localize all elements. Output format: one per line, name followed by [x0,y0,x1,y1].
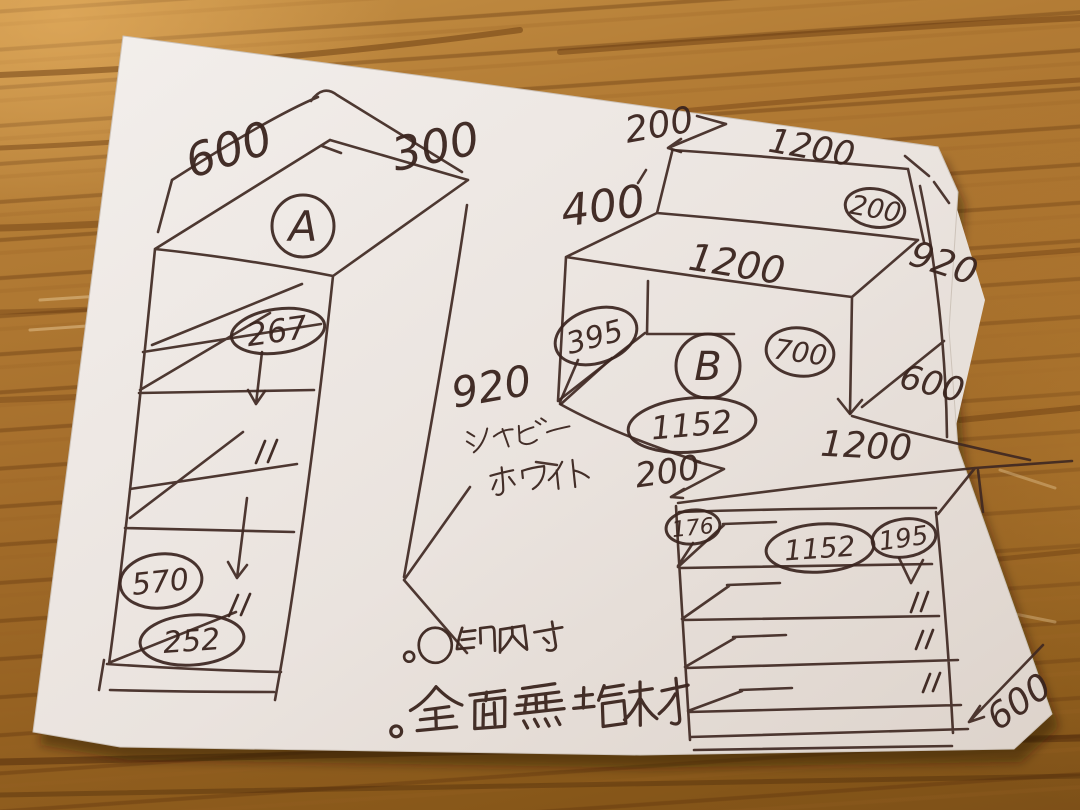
note-bullet-2-text: 。全面無垢材 [480,703,600,727]
wood-grain-line [990,551,1080,560]
finish-line2-text: ホワイト [495,473,575,497]
unit-a-shelf4-value: 570 [130,562,191,603]
wood-grain-line [0,776,1080,795]
photo-of-hand-drawn-sketch: 600 300 A 267 570 252 920 〃 〃 シャビー ホワイト … [0,0,1080,810]
unit-c-inner-left-label: 176 [671,514,715,543]
sketch-canvas: 600 300 A 267 570 252 920 〃 〃 シャビー ホワイト … [0,0,1080,810]
finish-line1-text: シャビー [470,431,550,455]
unit-a-ditto-1-text: 〃 [256,439,276,463]
unit-c-ditto-1-text: 〃 [909,587,929,611]
unit-c-ditto-3-text: 〃 [921,666,941,690]
wood-grain-line [960,408,1080,420]
unit-a-ditto-2-text: 〃 [230,591,250,615]
unit-a-shelf5-value: 252 [162,622,222,661]
unit-b-label: B [694,344,721,390]
unit-b-inner-width-label: 1152 [649,403,733,448]
wood-grain-line [560,18,1080,52]
unit-c-top-width-label: 1200 [819,424,913,470]
note-bullet-1-text: 。○印内寸 [433,633,530,657]
unit-c-inner-width-label: 1152 [783,530,856,568]
unit-c-ditto-2-text: 〃 [914,623,934,647]
unit-a-label: A [286,202,318,251]
